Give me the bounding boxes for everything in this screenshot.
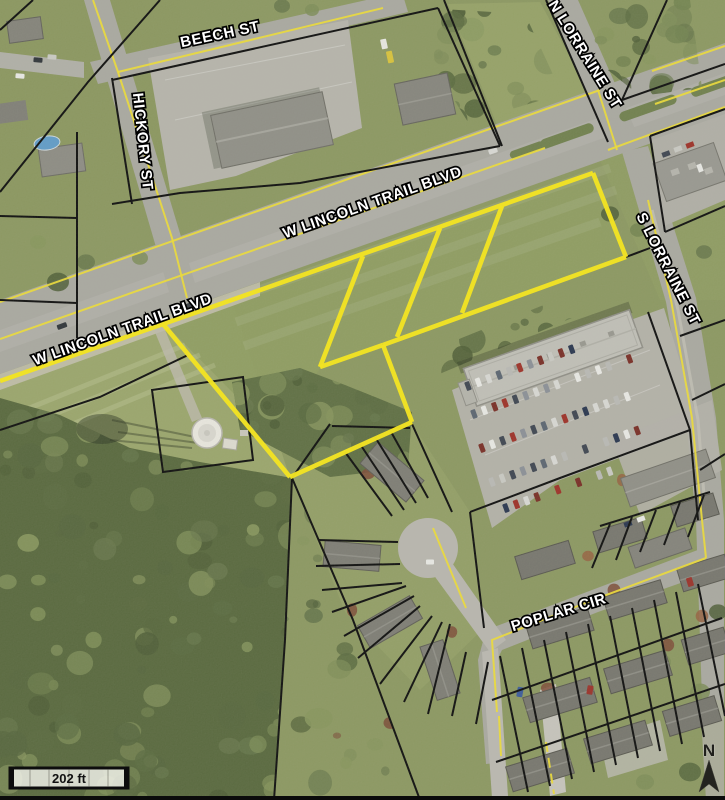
north-arrow-label: N — [703, 741, 715, 760]
map-viewport[interactable]: BEECH ST HICKORY ST N LORRAINE ST W LINC… — [0, 0, 725, 800]
scale-bar-label: 202 ft — [52, 771, 87, 786]
aerial-basemap: BEECH ST HICKORY ST N LORRAINE ST W LINC… — [0, 0, 725, 800]
scale-bar: 202 ft — [10, 768, 128, 788]
map-bottom-border — [0, 796, 725, 800]
photo-grain — [0, 0, 725, 800]
